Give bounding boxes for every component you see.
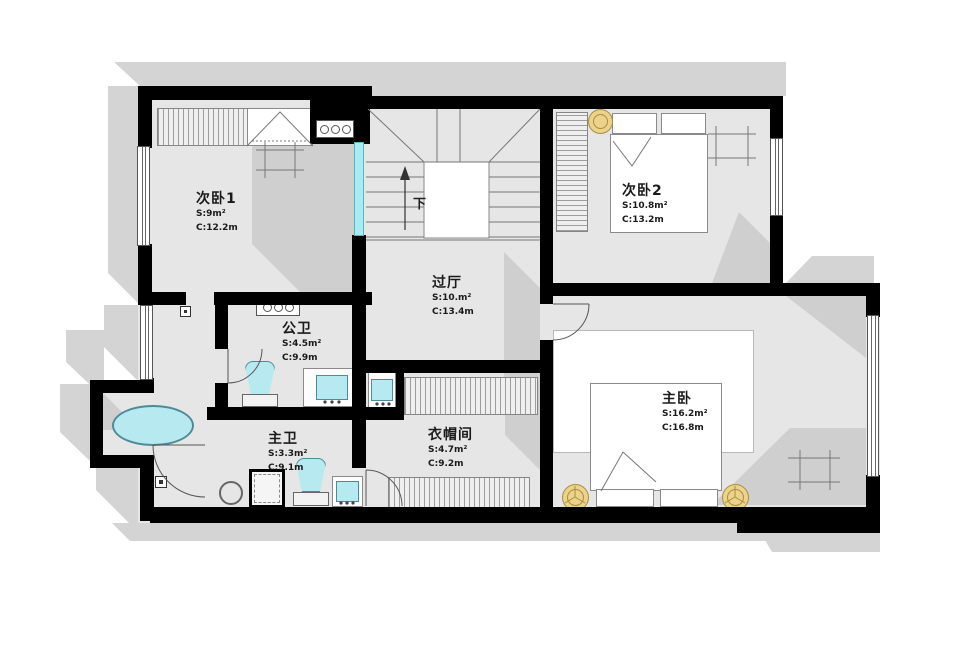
master-pillow (660, 489, 718, 507)
sink-basin (316, 375, 348, 400)
sink-basin (371, 379, 393, 401)
room-area: S:9m² (196, 208, 238, 222)
bedroom2-pillow (612, 113, 657, 134)
bedroom2-pillow (661, 113, 706, 134)
room-name: 次卧1 (196, 188, 238, 208)
room-circumference: C:13.2m (622, 214, 668, 228)
room-name: 次卧2 (622, 180, 668, 200)
room-name: 主卫 (268, 428, 307, 448)
drain-symbol (180, 306, 191, 317)
wall (366, 360, 542, 373)
stair-direction-label: 下 (413, 193, 426, 212)
bath-stool (219, 481, 243, 505)
room-label-public-bath: 公卫 S:4.5m² C:9.9m (282, 318, 321, 365)
wall (138, 86, 152, 148)
room-label-hall: 过厅 S:10.m² C:13.4m (432, 272, 474, 319)
room-label-bedroom1: 次卧1 S:9m² C:12.2m (196, 188, 238, 235)
room-area: S:10.m² (432, 292, 474, 306)
stair-glass-partition (354, 142, 364, 236)
wall (540, 296, 553, 304)
bedroom2-stool (588, 109, 613, 134)
wall (866, 283, 880, 317)
wall (352, 413, 366, 468)
wall (215, 305, 228, 349)
room-name: 主卧 (662, 388, 708, 408)
sink-basin (336, 481, 359, 502)
drain-symbol (155, 476, 167, 488)
room-name: 公卫 (282, 318, 321, 338)
bedroom1-wardrobe-hatch (157, 108, 249, 146)
window (137, 146, 150, 246)
room-area: S:10.8m² (622, 200, 668, 214)
window (770, 138, 783, 216)
wall (207, 407, 404, 420)
room-area: S:3.3m² (268, 448, 307, 462)
window (867, 315, 879, 477)
closet-wardrobe-top-hatch (404, 377, 538, 415)
wall (140, 455, 154, 521)
closet-wardrobe-bottom-hatch (388, 477, 530, 508)
wall (352, 235, 366, 415)
bedroom1-radiator (316, 120, 354, 138)
room-area: S:4.7m² (428, 444, 473, 458)
room-name: 过厅 (432, 272, 474, 292)
room-label-bedroom2: 次卧2 S:10.8m² C:13.2m (622, 180, 668, 227)
room-circumference: C:16.8m (662, 422, 708, 436)
master-pillow (596, 489, 654, 507)
toilet-tank (293, 492, 329, 506)
room-circumference: C:12.2m (196, 222, 238, 236)
wall (540, 96, 783, 109)
wall (368, 96, 543, 109)
room-circumference: C:13.4m (432, 306, 474, 320)
wall (138, 292, 186, 305)
room-label-master-bath: 主卫 S:3.3m² C:9.1m (268, 428, 307, 475)
floorplan: 次卧1 S:9m² C:12.2m 次卧2 S:10.8m² C:13.2m 过… (0, 0, 970, 650)
bathtub (112, 405, 194, 446)
bedroom1-vanity (247, 108, 313, 146)
window (140, 305, 153, 380)
bedroom2-wardrobe-hatch (556, 112, 588, 232)
room-area: S:4.5m² (282, 338, 321, 352)
room-label-master-bedroom: 主卧 S:16.2m² C:16.8m (662, 388, 708, 435)
wall (770, 96, 783, 140)
room-label-closet: 衣帽间 S:4.7m² C:9.2m (428, 424, 473, 471)
wall (737, 521, 880, 533)
toilet-tank (242, 394, 278, 407)
wall (540, 283, 880, 296)
wall (540, 109, 553, 296)
room-name: 衣帽间 (428, 424, 473, 444)
room-circumference: C:9.9m (282, 352, 321, 366)
room-circumference: C:9.2m (428, 458, 473, 472)
room-area: S:16.2m² (662, 408, 708, 422)
wall (214, 292, 372, 305)
room-circumference: C:9.1m (268, 462, 307, 476)
